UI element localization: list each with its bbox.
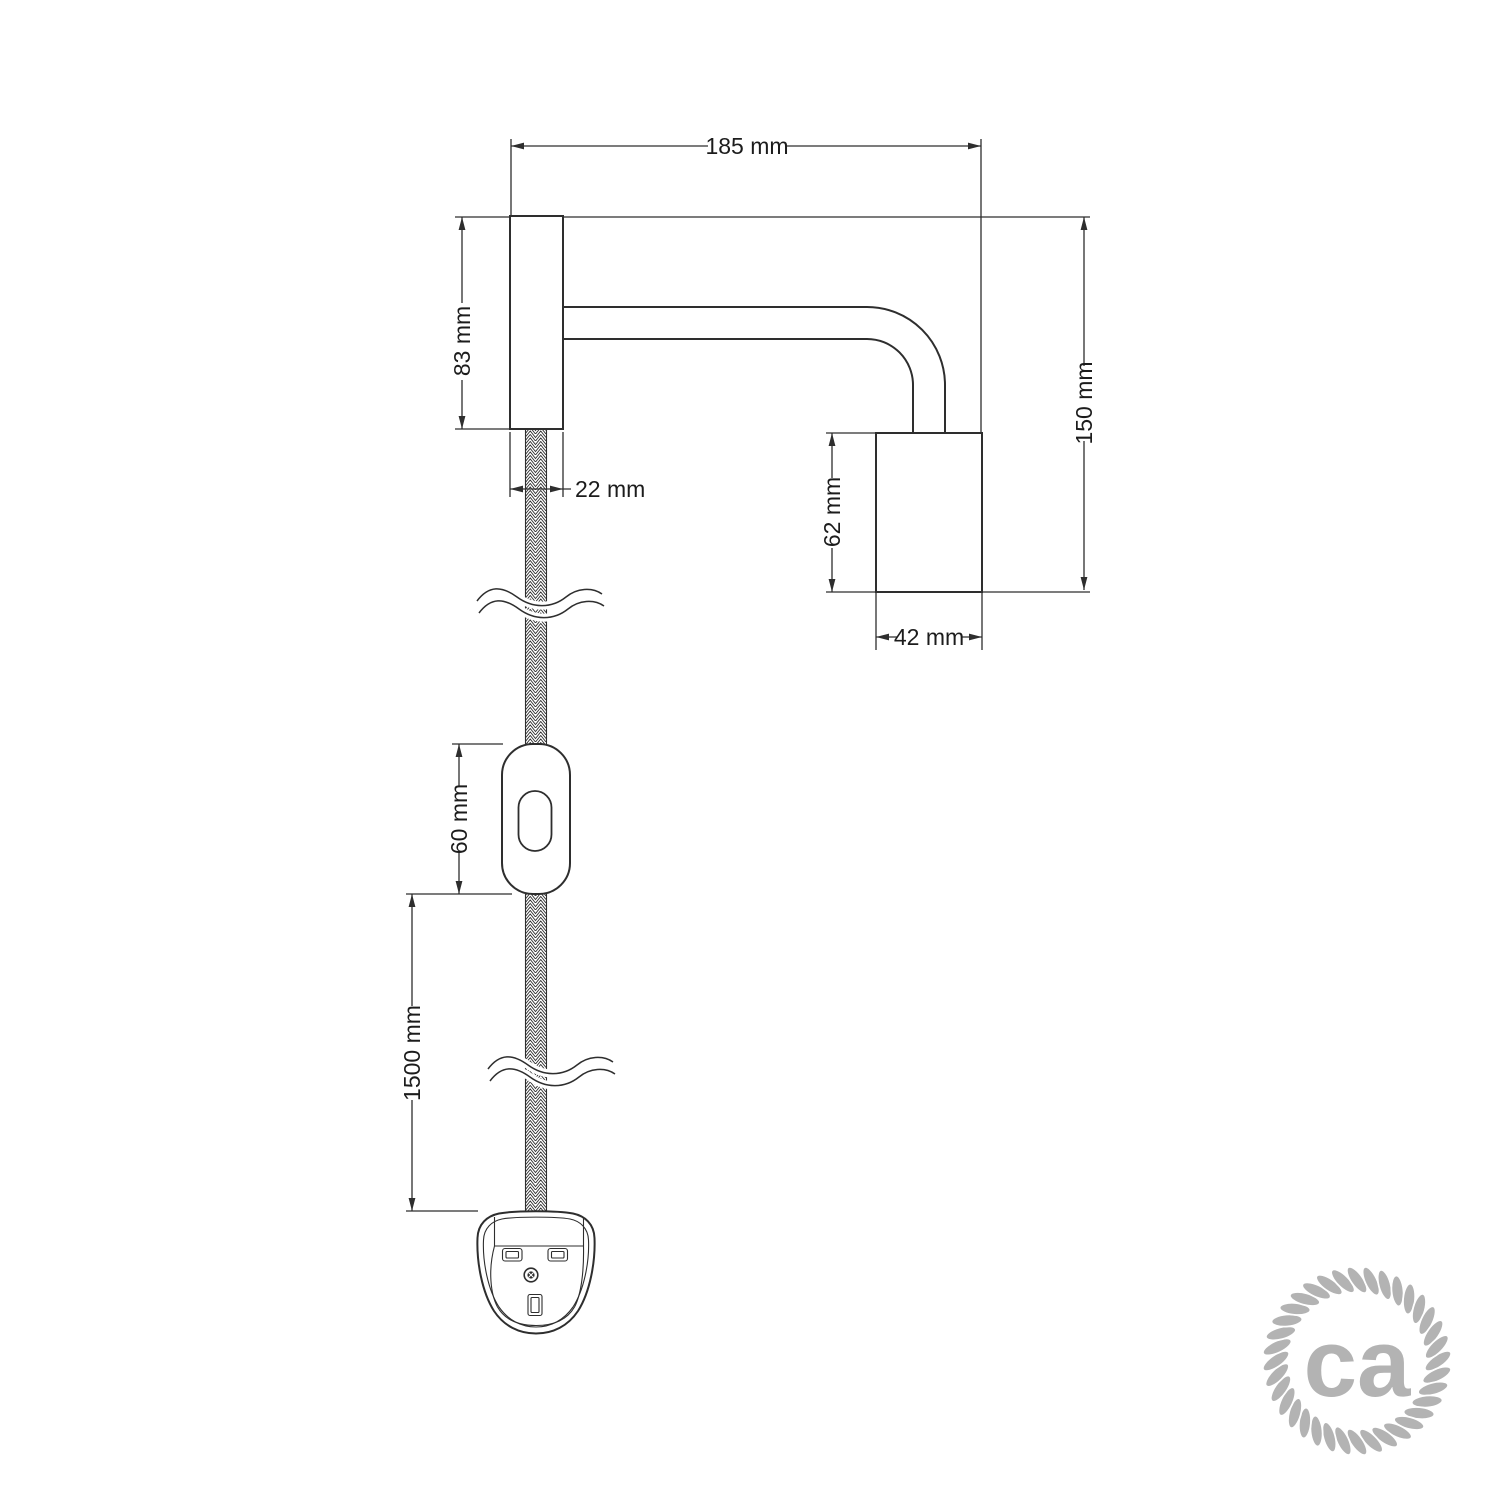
dimension-lamp-holder-height: 62 mm: [819, 433, 876, 592]
dimension-label: 185 mm: [705, 133, 788, 159]
arrowhead: [456, 744, 463, 757]
dimension-label: 42 mm: [894, 624, 964, 650]
dimension-label: 22 mm: [575, 476, 645, 502]
arrowhead: [511, 143, 524, 150]
dimension-arm-projection: 185 mm: [511, 133, 981, 433]
brand-logo: ca: [1260, 1264, 1454, 1458]
dimension-label: 62 mm: [819, 477, 845, 547]
dimension-switch-length: 60 mm: [406, 744, 512, 894]
arrowhead: [969, 634, 982, 641]
wall-lamp-fixture: [510, 216, 982, 592]
inline-switch: [502, 744, 570, 894]
plug: [477, 1211, 594, 1333]
lamp-holder: [876, 433, 982, 592]
arrowhead: [456, 881, 463, 894]
arrowhead: [829, 433, 836, 446]
arrowhead: [968, 143, 981, 150]
arrowhead: [459, 416, 466, 429]
lamp-arm-outer: [563, 307, 945, 433]
arrowhead: [409, 894, 416, 907]
logo-text: ca: [1304, 1310, 1411, 1417]
arrowhead: [829, 579, 836, 592]
dimension-label: 83 mm: [449, 306, 475, 376]
dimension-label: 150 mm: [1071, 361, 1097, 444]
dimension-wall-plate-height: 83 mm: [449, 217, 510, 429]
arrowhead: [550, 486, 563, 493]
arrowhead: [1081, 217, 1088, 230]
dimension-label: 1500 mm: [399, 1005, 425, 1101]
switch-button: [519, 791, 552, 851]
dimension-overall-height: 150 mm: [1071, 217, 1097, 590]
lamp-arm-inner: [563, 339, 913, 433]
arrowhead: [876, 634, 889, 641]
diagram-canvas: 185 mm 83 mm 150 mm 62 mm 42 mm: [0, 0, 1500, 1500]
arrowhead: [510, 486, 523, 493]
arrowhead: [409, 1198, 416, 1211]
wall-plate: [510, 216, 563, 429]
dimension-lamp-holder-width: 42 mm: [876, 592, 982, 650]
arrowhead: [459, 217, 466, 230]
dimension-cable-length: 1500 mm: [399, 894, 478, 1211]
arrowhead: [1081, 577, 1088, 590]
cable-break-symbol-lower: [488, 1057, 615, 1086]
technical-drawing: 185 mm 83 mm 150 mm 62 mm 42 mm: [0, 0, 1500, 1500]
dimension-label: 60 mm: [446, 784, 472, 854]
